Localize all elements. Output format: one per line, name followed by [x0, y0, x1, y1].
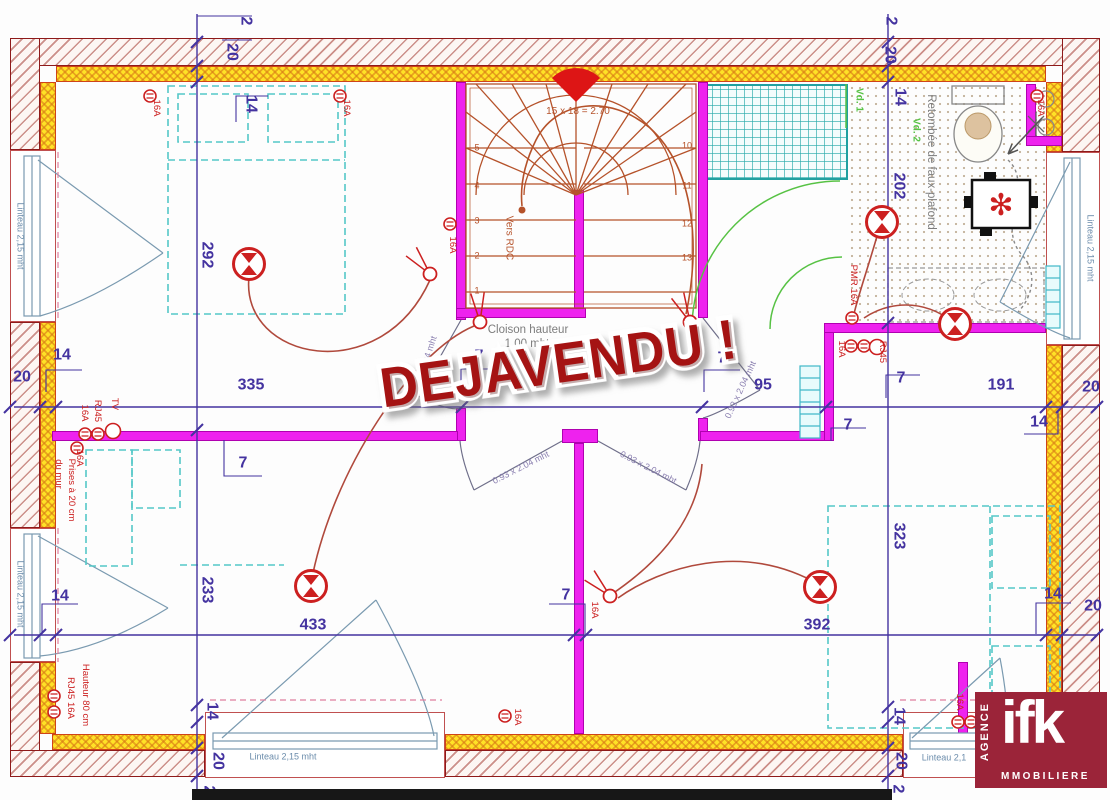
dim-label: 7: [844, 418, 853, 435]
ceiling-light-icon: [234, 249, 265, 280]
dim-label: 433: [300, 618, 327, 635]
ceiling-light-icon: [805, 572, 836, 603]
elec-label: 16A: [79, 405, 89, 422]
agency-logo: AGENCE ifk MMOBILIERE: [975, 692, 1107, 788]
partition-stair-spine: [574, 190, 584, 318]
partition-bath-horizontal: [824, 323, 1046, 333]
dim-label: 233: [198, 577, 215, 604]
sold-stamp-text: DEJAVENDU !: [361, 305, 756, 423]
agency-logo-bottom-text: MMOBILIERE: [1001, 771, 1090, 782]
partition-stair-left-upper: [456, 82, 466, 320]
socket-icon: [499, 710, 511, 722]
dim-label: 323: [890, 523, 907, 550]
dim-label: 191: [988, 378, 1015, 395]
switch-icon: [406, 247, 436, 280]
dim-label: 14: [242, 95, 259, 113]
insulation-left-2: [40, 322, 56, 528]
stairnum-label: 3: [474, 216, 479, 225]
elec-label: 16A: [74, 450, 84, 467]
insulation-left-1: [40, 82, 56, 150]
elec-label: 16A: [836, 341, 846, 358]
wall-left-2: [10, 322, 40, 528]
stairnum-label: 12: [682, 219, 692, 228]
wall-bottom-2: [445, 750, 903, 777]
elec-label: 16A: [341, 100, 351, 117]
stairnum-label: 11: [682, 181, 691, 190]
socket-icon: [858, 340, 870, 352]
dim-tick: [882, 701, 894, 713]
ceiling-light-icon: [296, 571, 327, 602]
door-label: 0.93 x 2.04 mht: [618, 450, 678, 487]
elec-label: Hauteur 80 cm: [80, 664, 90, 726]
scan-artifact-bar: [192, 789, 892, 800]
socket-icon: [334, 90, 346, 102]
window-recess-left-bottom: [10, 528, 56, 662]
elec-label: 16A: [512, 709, 522, 726]
sold-stamp: DEJAVENDU ! DEJAVENDU !: [362, 307, 765, 480]
stairnum-label: 10: [682, 141, 692, 150]
insulation-bottom-1: [52, 734, 205, 750]
stairtxt-label: 15 x 18 = 2.70: [546, 107, 610, 118]
elec-label: TV: [109, 398, 119, 410]
dim-label: 292: [198, 242, 215, 269]
socket-icon: [71, 442, 83, 454]
wall-left-1: [10, 38, 40, 150]
elec-label: RJ45 16A: [65, 677, 75, 719]
dim-label: 2: [882, 17, 899, 26]
dim-label: 7: [897, 371, 906, 388]
partition-wc-horizontal: [1026, 136, 1062, 146]
elec-label: 16A: [589, 602, 599, 619]
stairtxt-label: Vers RDC: [503, 216, 514, 260]
stairnum-label: 5: [474, 143, 479, 152]
wall-bottom-1: [10, 750, 205, 777]
agency-logo-brand: ifk: [1001, 688, 1062, 757]
insulation-right-2: [1046, 345, 1062, 734]
partition-stub-bottom-right: [958, 662, 968, 734]
elec-label: Prises à 20 cm: [66, 459, 76, 522]
dim-label: 392: [804, 618, 831, 635]
elec-label: 16A: [151, 100, 161, 117]
partition-stair-right-upper: [698, 82, 708, 318]
dim-label: 2: [237, 17, 254, 26]
insulation-bottom-2: [445, 734, 903, 750]
window-recess-right: [1046, 152, 1100, 345]
socket-icon: [444, 218, 456, 230]
wall-right-1: [1062, 38, 1100, 152]
partition-low-wall: [456, 308, 586, 318]
switch-icon: [585, 571, 617, 603]
insulation-top: [56, 66, 1046, 82]
agency-logo-vertical-text: AGENCE: [979, 702, 991, 761]
window-recess-left-top: [10, 150, 56, 322]
dim-label: 7: [239, 456, 248, 473]
partition-center-spine: [574, 443, 584, 734]
tv-outlet-icon: [870, 340, 885, 355]
stairnum-label: 4: [474, 181, 479, 190]
wall-top: [10, 38, 1100, 66]
window-recess-bottom-left: [205, 712, 445, 778]
dim-label: 335: [238, 378, 265, 395]
dim-tick: [191, 716, 203, 728]
partition-bath-vertical: [824, 323, 834, 441]
floor-plan-scan: ✻: [0, 0, 1110, 800]
shower-tray: [702, 84, 848, 180]
insulation-left-3: [40, 662, 56, 734]
dim-tick: [191, 699, 203, 711]
dim-label: 7: [562, 588, 571, 605]
dim-tick: [882, 716, 894, 728]
socket-icon: [845, 340, 857, 352]
bathroom-floor: [848, 84, 1046, 323]
elec-label: RJ45: [92, 400, 102, 422]
stairnum-label: 1: [474, 286, 479, 295]
stairnum-label: 13: [682, 253, 692, 262]
socket-icon: [144, 90, 156, 102]
elec-label: RJ45: [877, 341, 887, 363]
stairnum-label: 2: [474, 251, 479, 260]
